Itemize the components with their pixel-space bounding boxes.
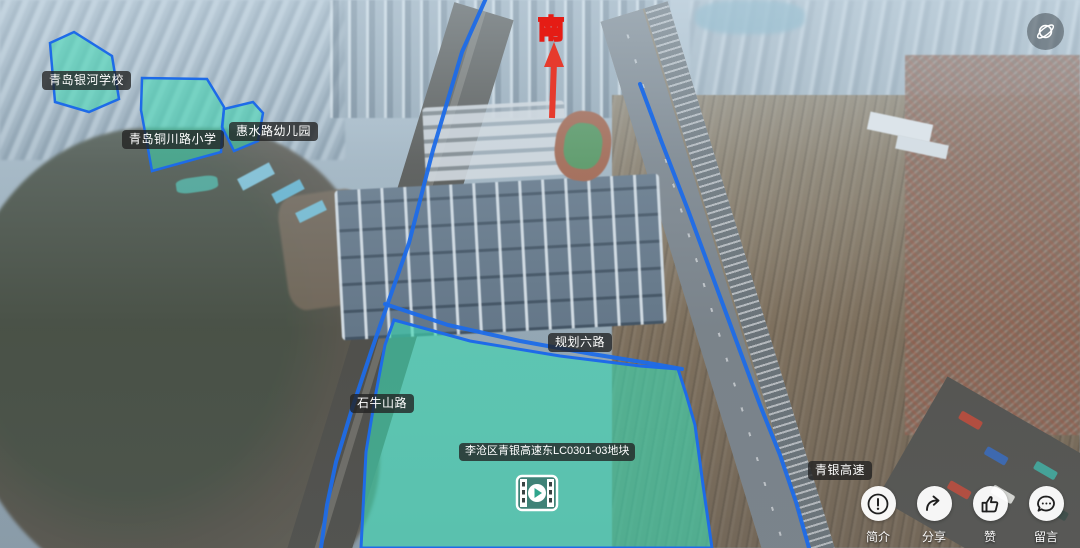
action-toolbar: 简介 分享 赞 bbox=[860, 486, 1075, 548]
share-button[interactable]: 分享 bbox=[916, 486, 952, 548]
share-button-label: 分享 bbox=[922, 528, 946, 545]
label-huishuilu-kindergarten: 惠水路幼儿园 bbox=[229, 122, 318, 141]
video-play-icon bbox=[515, 473, 559, 513]
label-shiniushan-road: 石牛山路 bbox=[350, 394, 414, 413]
comment-button-label: 留言 bbox=[1034, 528, 1058, 545]
share-arrow-icon bbox=[922, 492, 946, 516]
like-button-label: 赞 bbox=[984, 528, 996, 545]
info-circle-icon bbox=[866, 492, 890, 516]
panorama-planet-icon bbox=[1034, 20, 1057, 43]
label-yinhe-school: 青岛银河学校 bbox=[42, 71, 131, 90]
parcel-video-play-button[interactable] bbox=[515, 473, 559, 513]
panorama-viewer: 南 青岛银河学校 青岛铜川路小学 惠水路幼儿园 规划六路 石牛山路 青银高速 李… bbox=[0, 0, 1080, 548]
comment-button-circle bbox=[1029, 486, 1064, 521]
panorama-mode-button[interactable] bbox=[1027, 13, 1064, 50]
label-parcel-lc0301-03: 李沧区青银高速东LC0301-03地块 bbox=[459, 443, 635, 461]
like-button-circle bbox=[973, 486, 1008, 521]
compass-south-label: 南 bbox=[538, 16, 564, 42]
parcel-tongchuanlu-primary[interactable] bbox=[141, 78, 224, 171]
comment-dots-icon bbox=[1034, 492, 1058, 516]
parcel-lc0301-03[interactable] bbox=[361, 320, 712, 548]
intro-button-label: 简介 bbox=[866, 528, 890, 545]
thumbs-up-icon bbox=[978, 492, 1002, 516]
south-arrow-icon bbox=[544, 42, 564, 118]
like-button[interactable]: 赞 bbox=[972, 486, 1008, 548]
map-overlay bbox=[0, 0, 1080, 548]
label-qingyin-expressway: 青银高速 bbox=[808, 461, 872, 480]
share-button-circle bbox=[917, 486, 952, 521]
intro-button-circle bbox=[861, 486, 896, 521]
label-tongchuanlu-primary: 青岛铜川路小学 bbox=[122, 130, 224, 149]
comment-button[interactable]: 留言 bbox=[1028, 486, 1064, 548]
intro-button[interactable]: 简介 bbox=[860, 486, 896, 548]
label-planned-six-road: 规划六路 bbox=[548, 333, 612, 352]
